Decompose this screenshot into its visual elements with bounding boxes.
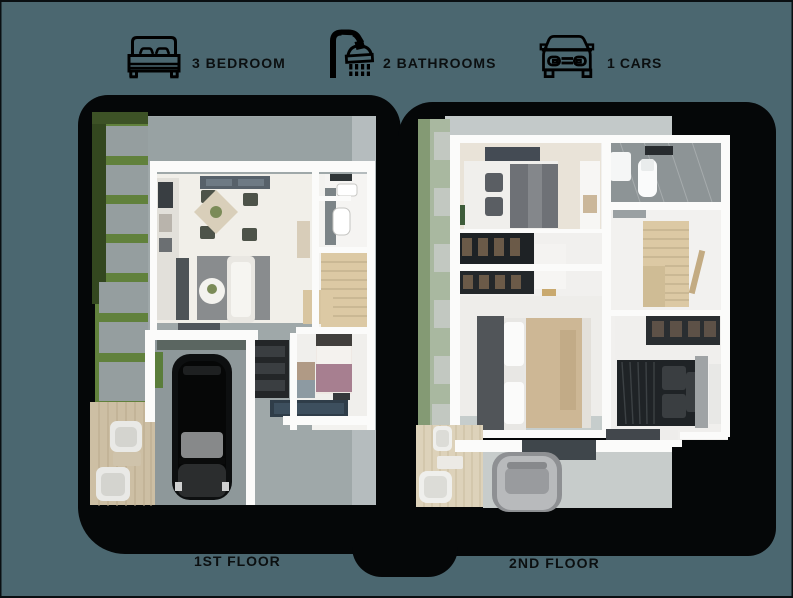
svg-text:1 CARS: 1 CARS bbox=[607, 55, 662, 71]
svg-text:2ND FLOOR: 2ND FLOOR bbox=[509, 555, 600, 571]
svg-text:3 BEDROOM: 3 BEDROOM bbox=[192, 55, 286, 71]
svg-text:2 BATHROOMS: 2 BATHROOMS bbox=[383, 55, 496, 71]
svg-text:1ST FLOOR: 1ST FLOOR bbox=[194, 553, 281, 569]
